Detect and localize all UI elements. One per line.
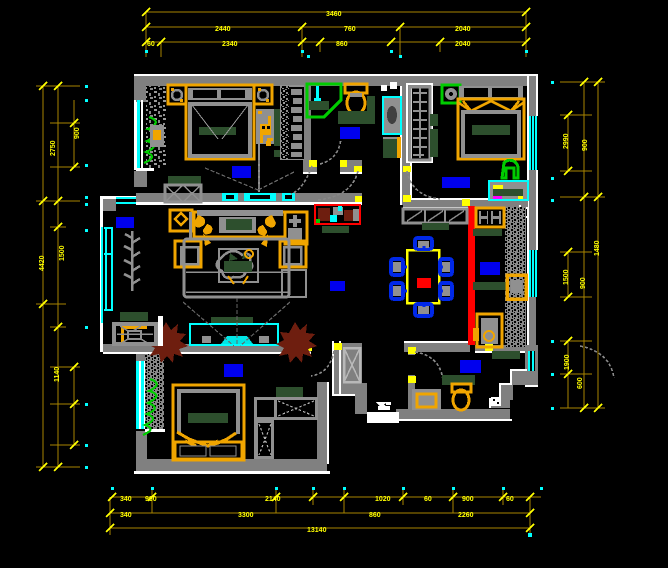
- svg-text:2440: 2440: [215, 26, 231, 33]
- svg-text:2040: 2040: [455, 26, 471, 33]
- svg-text:2260: 2260: [458, 512, 474, 519]
- svg-text:2140: 2140: [265, 496, 281, 503]
- svg-text:1480: 1480: [594, 240, 601, 256]
- svg-text:900: 900: [145, 496, 157, 503]
- svg-text:1500: 1500: [563, 269, 570, 285]
- svg-text:760: 760: [344, 26, 356, 33]
- svg-text:2040: 2040: [455, 41, 471, 48]
- svg-text:1140: 1140: [54, 367, 61, 382]
- svg-text:60: 60: [424, 496, 432, 503]
- svg-text:3300: 3300: [238, 512, 254, 519]
- svg-text:2340: 2340: [222, 41, 238, 48]
- svg-text:900: 900: [462, 496, 474, 503]
- svg-text:2990: 2990: [563, 133, 570, 149]
- svg-text:340: 340: [120, 496, 132, 503]
- svg-text:1500: 1500: [59, 245, 66, 261]
- svg-text:860: 860: [336, 41, 348, 48]
- svg-text:60: 60: [147, 41, 155, 48]
- svg-text:13140: 13140: [307, 527, 327, 534]
- svg-text:900: 900: [74, 127, 81, 139]
- svg-text:2750: 2750: [50, 140, 57, 156]
- svg-text:60: 60: [506, 496, 514, 503]
- svg-text:600: 600: [577, 377, 584, 389]
- svg-text:900: 900: [580, 277, 587, 289]
- svg-text:860: 860: [369, 512, 381, 519]
- svg-text:1900: 1900: [564, 354, 571, 370]
- svg-text:3460: 3460: [326, 11, 342, 18]
- svg-text:900: 900: [582, 139, 589, 151]
- svg-text:4420: 4420: [39, 255, 46, 271]
- svg-text:1020: 1020: [375, 496, 391, 503]
- svg-text:340: 340: [120, 512, 132, 519]
